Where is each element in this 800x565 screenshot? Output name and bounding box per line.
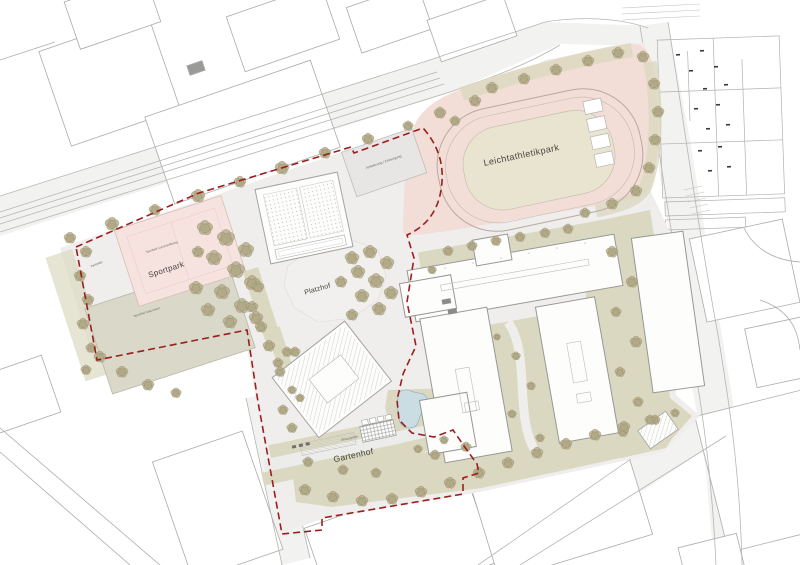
dimension-tick (698, 150, 702, 152)
tree (64, 232, 76, 243)
site-plan: LeichtathletikparkSportparkPlatzhofGarte… (0, 0, 800, 565)
dimension-tick (727, 166, 731, 168)
dimension-tick (716, 104, 720, 106)
dimension-tick (706, 128, 710, 130)
dimension-tick (700, 50, 704, 52)
tree (171, 388, 181, 398)
dimension-tick (703, 88, 707, 90)
tree (403, 121, 413, 131)
dimension-tick (714, 66, 718, 68)
dimension-tick (718, 146, 722, 148)
dimension-tick (726, 124, 730, 126)
dimension-tick (708, 170, 712, 172)
dimension-tick (724, 84, 728, 86)
dimension-tick (694, 108, 698, 110)
dimension-tick (689, 70, 693, 72)
site-plan-svg: LeichtathletikparkSportparkPlatzhofGarte… (0, 0, 800, 565)
tree (362, 133, 374, 144)
dimension-tick (676, 54, 680, 56)
